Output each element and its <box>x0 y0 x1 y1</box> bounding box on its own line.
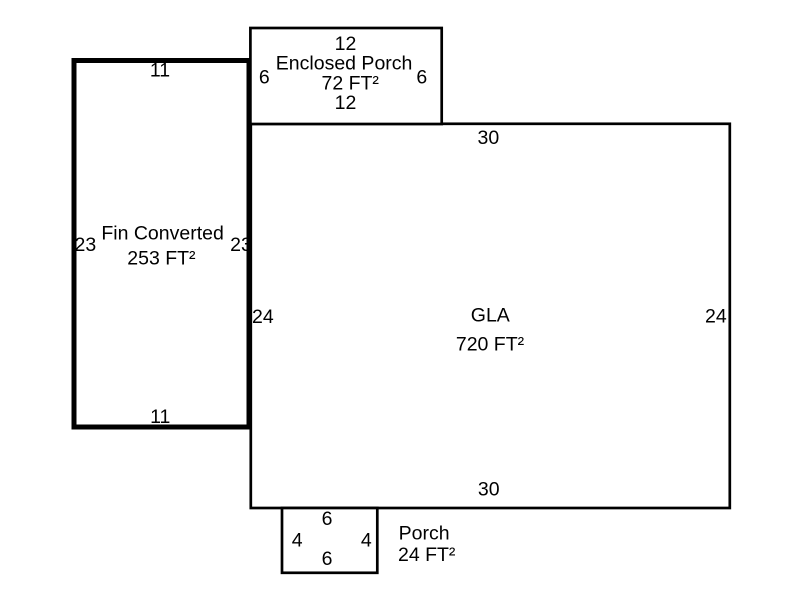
svg-text:12: 12 <box>335 33 357 55</box>
svg-text:720 FT²: 720 FT² <box>456 333 525 355</box>
svg-text:6: 6 <box>322 548 333 570</box>
svg-text:Fin Converted: Fin Converted <box>101 223 223 245</box>
svg-text:30: 30 <box>478 127 500 149</box>
svg-text:12: 12 <box>335 92 357 114</box>
svg-text:4: 4 <box>292 529 303 551</box>
svg-text:72 FT²: 72 FT² <box>321 72 379 94</box>
svg-text:23: 23 <box>75 234 97 256</box>
svg-text:6: 6 <box>259 66 270 88</box>
svg-text:24: 24 <box>705 306 727 328</box>
svg-text:GLA: GLA <box>471 305 510 327</box>
svg-text:11: 11 <box>150 59 170 81</box>
svg-text:11: 11 <box>150 406 170 428</box>
svg-text:24: 24 <box>252 306 274 328</box>
svg-text:Porch: Porch <box>399 523 450 545</box>
svg-text:Enclosed Porch: Enclosed Porch <box>276 53 413 75</box>
svg-text:6: 6 <box>322 508 333 530</box>
svg-text:23: 23 <box>230 234 252 256</box>
svg-text:30: 30 <box>478 479 500 501</box>
svg-text:4: 4 <box>361 529 372 551</box>
svg-text:6: 6 <box>416 66 427 88</box>
svg-text:253 FT²: 253 FT² <box>127 248 196 270</box>
svg-text:24 FT²: 24 FT² <box>398 544 456 566</box>
